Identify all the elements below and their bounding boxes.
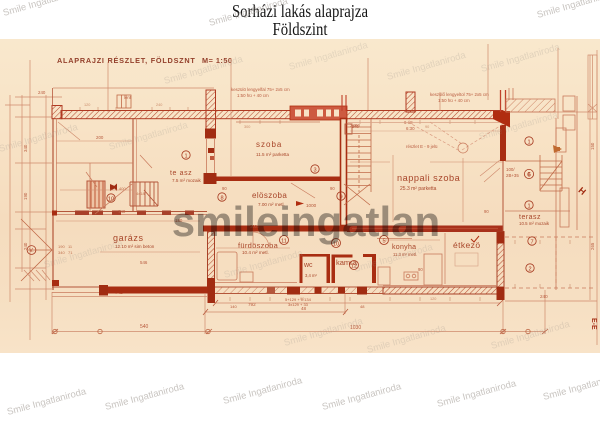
- svg-text:terasz: terasz: [519, 214, 541, 221]
- svg-text:V.: V.: [29, 248, 33, 254]
- svg-text:240: 240: [352, 124, 360, 129]
- svg-text:240: 240: [38, 90, 46, 95]
- svg-text:H: H: [576, 185, 587, 197]
- svg-text:Smile Ingatlaniroda: Smile Ingatlaniroda: [542, 371, 600, 403]
- svg-text:Smile Ingatlaniroda: Smile Ingatlaniroda: [490, 319, 572, 352]
- svg-text:1: 1: [184, 154, 187, 160]
- svg-text:Smile Ingatlaniroda: Smile Ingatlaniroda: [480, 42, 562, 75]
- svg-text:Smile Ingatlaniroda: Smile Ingatlaniroda: [222, 375, 304, 407]
- svg-text:Smile Ingatlaniroda: Smile Ingatlaniroda: [2, 0, 84, 19]
- svg-text:90: 90: [222, 186, 227, 191]
- svg-text:részlet E - 9 jelü: részlet E - 9 jelü: [406, 144, 438, 149]
- svg-text:150: 150: [590, 142, 595, 150]
- svg-text:1: 1: [527, 140, 530, 146]
- svg-text:keszülő lengyeltol 75+ 2x5 cm: keszülő lengyeltol 75+ 2x5 cm: [430, 92, 489, 97]
- svg-text:120: 120: [430, 297, 436, 301]
- svg-text:3,4 m²: 3,4 m²: [305, 273, 317, 278]
- svg-text:étkezö: étkezö: [453, 240, 480, 250]
- svg-text:Smile Ingatlaniroda: Smile Ingatlaniroda: [0, 122, 80, 155]
- svg-text:szoba: szoba: [256, 140, 282, 149]
- svg-text:90: 90: [425, 125, 429, 129]
- svg-text:11: 11: [68, 244, 73, 249]
- svg-text:90: 90: [330, 186, 335, 191]
- svg-text:48: 48: [360, 304, 365, 309]
- svg-text:6: 6: [527, 172, 531, 179]
- svg-text:10.5 m² mozaik: 10.5 m² mozaik: [519, 221, 550, 226]
- svg-text:Smile Ingatlaniroda: Smile Ingatlaniroda: [104, 381, 186, 413]
- svg-text:240: 240: [156, 103, 162, 107]
- svg-text:200: 200: [96, 135, 104, 140]
- svg-text:10: 10: [108, 197, 114, 203]
- svg-text:3: 3: [313, 168, 316, 174]
- svg-text:7.5 m² mozaik: 7.5 m² mozaik: [172, 178, 202, 183]
- svg-text:240: 240: [540, 294, 548, 299]
- svg-text:3x129 + 33: 3x129 + 33: [288, 302, 309, 307]
- svg-text:Smile Ingatlaniroda: Smile Ingatlaniroda: [6, 386, 88, 418]
- svg-text:E-E: E-E: [590, 318, 597, 330]
- svg-text:Smile Ingatlaniroda: Smile Ingatlaniroda: [321, 381, 403, 413]
- svg-text:7: 7: [530, 240, 533, 246]
- svg-text:keszülö lengyelfal 75+ 2x5 cm: keszülö lengyelfal 75+ 2x5 cm: [231, 87, 290, 92]
- svg-text:190: 190: [23, 192, 28, 200]
- svg-text:540: 540: [140, 324, 149, 330]
- svg-text:Smile Ingatlaniroda: Smile Ingatlaniroda: [436, 378, 518, 410]
- svg-text:Smile Ingatlaniroda: Smile Ingatlaniroda: [208, 0, 290, 29]
- svg-text:792: 792: [248, 302, 256, 307]
- svg-text:1:50 hü + 40 cm: 1:50 hü + 40 cm: [438, 98, 470, 103]
- svg-text:1: 1: [527, 204, 530, 210]
- svg-text:190: 190: [58, 244, 65, 249]
- svg-text:1:50 hü + 40 cm: 1:50 hü + 40 cm: [237, 93, 269, 98]
- svg-text:ALAPRAJZI RÉSZLET, FÖLDSZNT: ALAPRAJZI RÉSZLET, FÖLDSZNT: [57, 56, 196, 65]
- svg-text:100/: 100/: [506, 167, 515, 172]
- svg-text:265: 265: [590, 242, 595, 250]
- svg-text:te asz: te asz: [170, 170, 192, 177]
- svg-text:300: 300: [244, 125, 250, 129]
- svg-text:90: 90: [300, 297, 304, 301]
- svg-text:2B+35: 2B+35: [506, 173, 519, 178]
- svg-text:wc: wc: [303, 262, 313, 269]
- svg-text:Smile Ingatlaniroda: Smile Ingatlaniroda: [288, 40, 370, 73]
- svg-text:10.4 m² metl.: 10.4 m² metl.: [242, 250, 269, 255]
- svg-text:120: 120: [84, 103, 90, 107]
- svg-text:Smile Ingatlaniroda: Smile Ingatlaniroda: [366, 323, 448, 356]
- svg-text:25.3 m² parketta: 25.3 m² parketta: [400, 186, 437, 192]
- svg-text:6:30: 6:30: [406, 126, 415, 131]
- svg-text:140: 140: [118, 209, 126, 214]
- svg-text:Smile Ingatlaniroda: Smile Ingatlaniroda: [43, 238, 125, 271]
- svg-text:nappali szoba: nappali szoba: [397, 173, 461, 183]
- svg-text:smileingatlan: smileingatlan: [172, 198, 440, 245]
- svg-text:90: 90: [418, 267, 423, 272]
- svg-text:90: 90: [484, 209, 489, 214]
- svg-text:140: 140: [230, 304, 237, 309]
- svg-text:Smile Ingatlaniroda: Smile Ingatlaniroda: [536, 0, 600, 21]
- svg-text:11.5 m² parketta: 11.5 m² parketta: [256, 152, 290, 157]
- svg-text:546: 546: [140, 260, 148, 265]
- svg-text:Smile Ingatlaniroda: Smile Ingatlaniroda: [108, 120, 190, 153]
- svg-text:Smile Ingatlaniroda: Smile Ingatlaniroda: [283, 316, 365, 349]
- svg-text:Smile Ingatlaniroda: Smile Ingatlaniroda: [386, 50, 468, 83]
- svg-text:2: 2: [528, 267, 531, 273]
- svg-text:4x18: 4x18: [136, 191, 145, 196]
